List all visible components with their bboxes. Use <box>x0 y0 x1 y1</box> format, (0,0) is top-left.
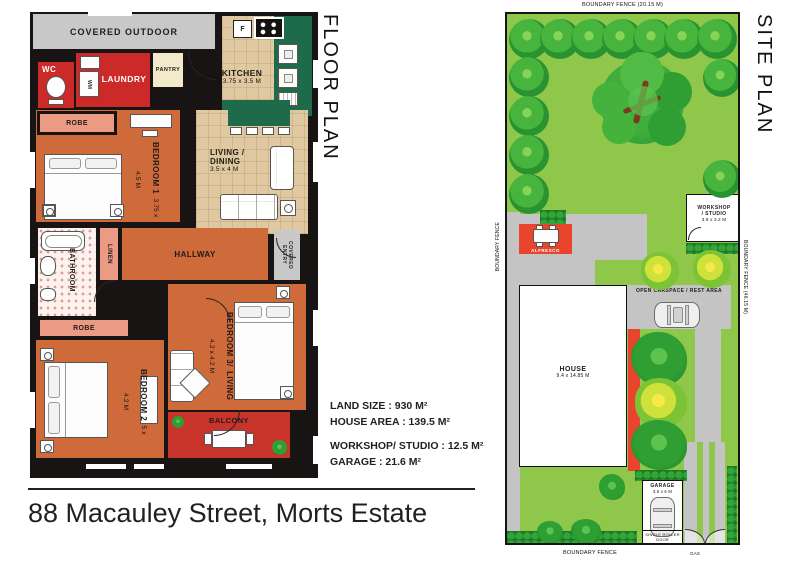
plant-icon <box>272 440 287 455</box>
bedroom1-label: BEDROOM 1 3.75 x 4.5 M <box>128 140 164 220</box>
pillow-icon <box>48 402 60 434</box>
workshop-studio-area: WORKSHOP/ STUDIO : 12.5 M² <box>330 440 495 452</box>
bush-icon <box>509 57 549 97</box>
bed2-icon <box>44 362 108 438</box>
address-divider <box>28 488 475 490</box>
garage-label: GARAGE 3.6 x 6 M <box>643 483 682 494</box>
living-label: LIVING / DINING 3.5 x 4 M <box>210 148 272 173</box>
dining-table-icon <box>228 100 290 126</box>
garage-outline: GARAGE 3.6 x 6 M SINGLE ROLLER DOOR <box>642 480 683 545</box>
bush-icon <box>697 19 737 59</box>
window <box>134 464 164 469</box>
shrub-icon <box>537 521 563 543</box>
driveway-grass-strip <box>697 442 703 545</box>
pillow-icon <box>49 158 81 169</box>
hedge-strip <box>540 210 566 224</box>
outdoor-chair-icon <box>549 225 556 230</box>
car-icon <box>654 302 700 328</box>
bush-icon <box>509 96 549 136</box>
pillow-icon <box>85 158 117 169</box>
house-label: HOUSE 9.4 x 14.85 M <box>520 366 626 379</box>
garage-area: GARAGE : 21.6 M² <box>330 456 495 468</box>
bedroom2-label: BEDROOM 2 5 x 4.2 M <box>116 364 152 440</box>
nightstand-icon <box>42 204 56 217</box>
toilet-tank <box>48 99 64 105</box>
pillow-icon <box>48 366 60 398</box>
floor-plan: COVERED OUTDOOR F KITCHEN 3.75 x 3.5 M P… <box>30 12 318 478</box>
bathtub-icon <box>41 231 85 251</box>
gas-label: GAS <box>690 551 700 556</box>
room-wc: WC <box>38 62 74 108</box>
laundry-sink-icon <box>80 56 100 69</box>
tree-icon <box>592 52 692 152</box>
toilet-icon <box>46 76 66 98</box>
land-size: LAND SIZE : 930 M² <box>330 400 495 412</box>
balcony-chair-icon <box>246 433 254 445</box>
washing-machine-icon: WM <box>79 71 99 97</box>
covered-outdoor-label: COVERED OUTDOOR <box>70 27 178 37</box>
kitchen-sink-icon <box>278 44 298 64</box>
plant-icon <box>172 416 184 428</box>
workshop-door-arc <box>688 227 701 240</box>
balcony-chair-icon <box>204 433 212 445</box>
stove-icon <box>254 17 284 39</box>
fence-label-bottom: BOUNDARY FENCE <box>530 550 650 556</box>
window <box>30 392 35 428</box>
pillow-icon <box>238 306 262 318</box>
nightstand-icon <box>40 348 54 361</box>
room-laundry: LAUNDRY WM <box>76 53 150 107</box>
dining-chair-icon <box>262 127 274 135</box>
nightstand-icon <box>276 286 290 299</box>
outdoor-chair-icon <box>536 242 543 247</box>
shrub-icon <box>693 250 731 288</box>
kitchen-sink2-icon <box>278 68 298 88</box>
window <box>313 310 318 346</box>
bush-icon <box>703 160 740 198</box>
desk-icon <box>130 114 172 128</box>
bedroom3-label: BEDROOM 3/ LIVING 4.2 x 4.2 M <box>202 308 238 404</box>
room-hallway: HALLWAY <box>122 228 268 280</box>
dining-chair-icon <box>246 127 258 135</box>
site-plan: ALFRESCO HOUSE 9.4 x 14.85 M WORKSHOP / … <box>505 12 740 545</box>
bush-icon <box>509 174 549 214</box>
window <box>30 152 35 188</box>
floor-plan-title: FLOOR PLAN <box>318 14 341 161</box>
shrub-icon <box>641 252 679 290</box>
workshop-outline: WORKSHOP / STUDIO 3.9 x 3.2 M <box>686 194 740 242</box>
window <box>86 464 126 469</box>
carspace-label: OPEN CARSPACE / REST AREA <box>627 288 731 294</box>
page-title: 88 Macauley Street, Morts Estate <box>28 498 488 529</box>
robe2: ROBE <box>40 320 128 336</box>
fence-label-top: BOUNDARY FENCE (20.15 M) <box>505 2 740 8</box>
site-plan-title: SITE PLAN <box>752 14 775 134</box>
room-linen: LINEN <box>100 228 118 280</box>
dining-chair-icon <box>230 127 242 135</box>
alfresco-area: ALFRESCO <box>519 224 572 254</box>
hedge-strip <box>727 466 737 545</box>
nightstand-icon <box>280 386 294 399</box>
bathroom-label: BATHROOM <box>68 248 75 314</box>
fridge-icon: F <box>233 20 252 38</box>
outdoor-table-icon <box>533 229 559 243</box>
nightstand-icon <box>40 440 54 453</box>
window <box>313 436 318 464</box>
desk-chair-icon <box>142 130 158 137</box>
robe1: ROBE <box>40 114 114 132</box>
room-bathroom: BATHROOM <box>38 228 96 316</box>
shrub-icon <box>571 519 601 543</box>
toilet-icon <box>40 256 56 276</box>
pillow-icon <box>266 306 290 318</box>
driveway-grass-strip <box>709 442 715 545</box>
real-estate-plan-page: COVERED OUTDOOR F KITCHEN 3.75 x 3.5 M P… <box>0 0 800 565</box>
dining-chair-icon <box>278 127 290 135</box>
alfresco-label: ALFRESCO <box>519 248 572 253</box>
workshop-label: WORKSHOP / STUDIO 3.9 x 3.2 M <box>687 205 740 222</box>
house-outline: HOUSE 9.4 x 14.85 M <box>519 285 627 467</box>
bush-icon <box>703 59 740 97</box>
bathroom-door-arc <box>94 280 116 302</box>
window <box>30 258 35 284</box>
outdoor-chair-icon <box>536 225 543 230</box>
fence-label-right: BOUNDARY FENCE (46.15 M) <box>742 240 748 314</box>
fence-label-left: BOUNDARY FENCE <box>495 222 501 271</box>
bush-icon <box>509 135 549 175</box>
nightstand-icon <box>110 204 124 217</box>
kitchen-door-arc <box>188 52 216 80</box>
side-table-icon <box>280 200 296 216</box>
room-covered-outdoor: COVERED OUTDOOR <box>33 14 215 49</box>
fridge-label: F <box>240 26 244 33</box>
window <box>88 12 132 16</box>
summary-block: LAND SIZE : 930 M² HOUSE AREA : 139.5 M²… <box>330 400 495 468</box>
window <box>226 464 272 469</box>
sofa-icon <box>220 194 278 220</box>
kitchen-label: KITCHEN 3.75 x 3.5 M <box>206 68 278 85</box>
roller-door-label: SINGLE ROLLER DOOR <box>643 530 682 542</box>
house-area: HOUSE AREA : 139.5 M² <box>330 416 495 428</box>
bath-sink-icon <box>40 288 56 301</box>
room-pantry: PANTRY <box>153 53 183 87</box>
armchair-icon <box>270 146 294 190</box>
shrub-icon <box>599 474 625 500</box>
outdoor-chair-icon <box>549 242 556 247</box>
shrub-icon <box>631 420 687 470</box>
